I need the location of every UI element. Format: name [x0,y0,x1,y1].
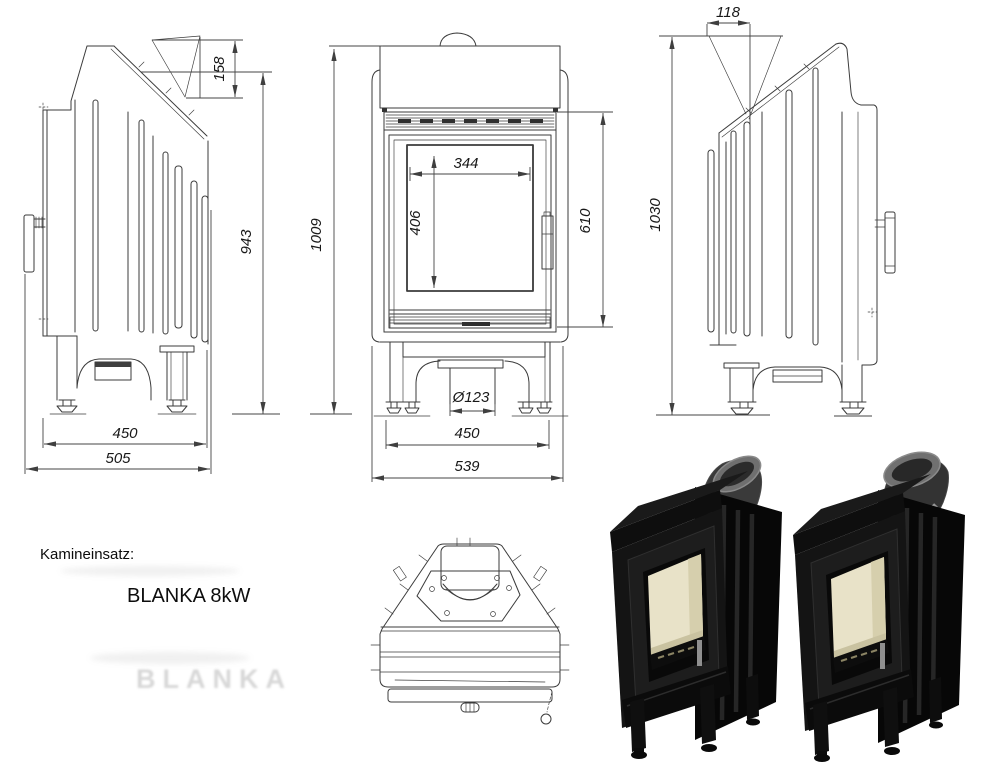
front-view-body [372,33,568,416]
fins-left [75,100,208,342]
print-smudge [90,652,250,664]
handle-side-right [885,212,895,273]
dim-flue-diameter: Ø123 [452,389,490,406]
side-view-right: 118 1030 [647,4,895,416]
product-photo-left [610,449,782,759]
dim-flue-height: 158 [211,56,228,82]
side-view-left: 158 943 450 505 [24,36,280,474]
front-view-dimensions: 1009 344 406 610 Ø123 450 539 [308,46,613,482]
dim-total-height: 1009 [308,218,325,252]
perimeter-ticks [371,538,569,670]
side-view-right-body [708,36,895,414]
dim-glass-height: 406 [407,210,424,236]
side-view-right-dimensions: 118 1030 [647,4,872,416]
front-plate [388,689,552,702]
flue-stub-profile-right [709,36,781,119]
model-name: BLANKA 8kW [127,585,250,608]
technical-sheet: 158 943 450 505 [0,0,982,767]
caption-label: Kamineinsatz: [40,546,134,563]
print-smudge [60,566,240,576]
product-photo-right [793,446,965,762]
dim-foot-span-front: 450 [454,425,480,442]
dim-foot-span-left: 450 [112,425,138,442]
dim-door-height: 610 [577,208,594,234]
watermark-text: BLANKA [136,664,292,695]
dim-body-height: 943 [238,229,255,255]
chain-ring [541,714,551,724]
dim-total-height-right: 1030 [647,198,664,232]
dim-depth: 505 [105,450,131,467]
flue-stub-profile [152,36,200,97]
front-view: 1009 344 406 610 Ø123 450 539 [308,33,613,482]
flue-collar-front [440,33,476,46]
dim-glass-width: 344 [453,155,478,172]
top-view [371,538,569,724]
flue-collar-top [441,546,499,590]
fins-right [708,68,842,362]
flue-mounting-plate [417,571,520,621]
dim-width: 539 [454,458,480,475]
dim-flue-offset: 118 [716,4,741,21]
side-view-left-body [24,36,208,414]
hood [380,46,560,108]
handle-side [24,215,34,272]
